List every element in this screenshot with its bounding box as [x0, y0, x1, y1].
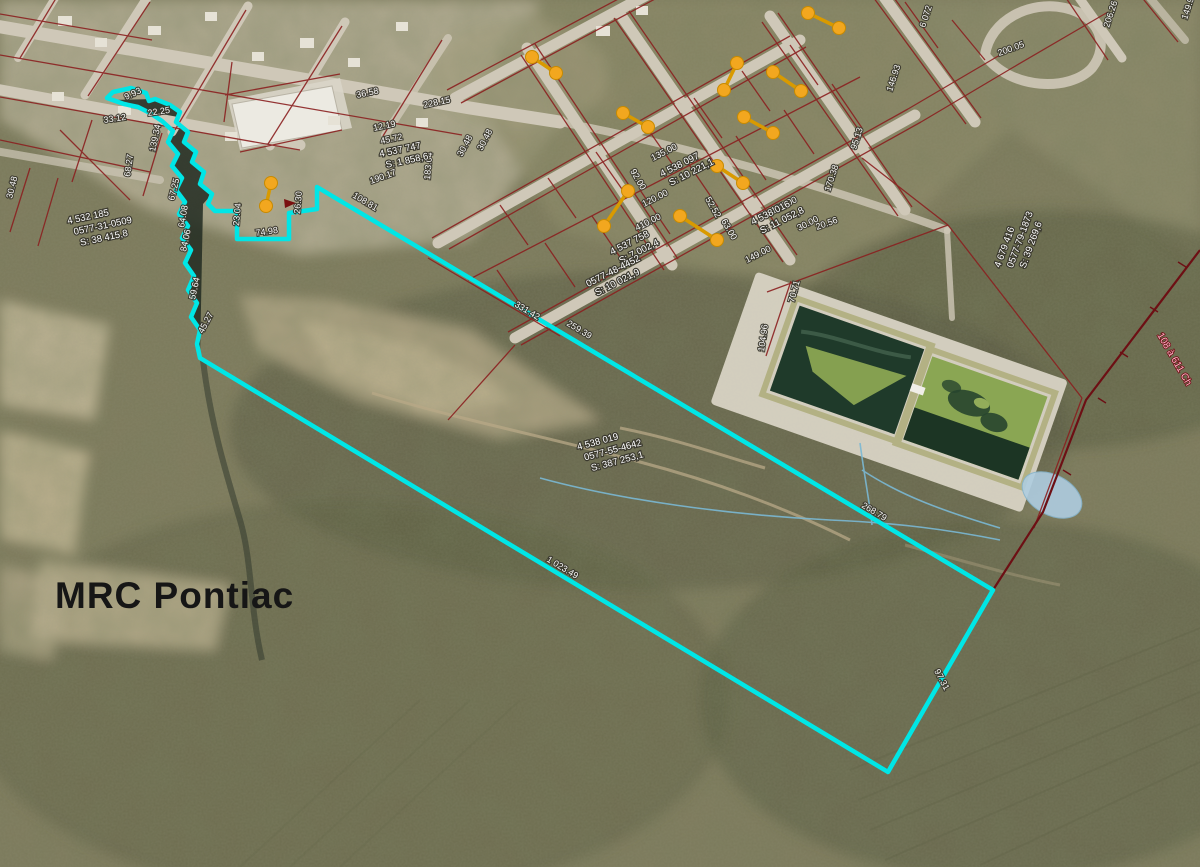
map-canvas[interactable]: 22.25 33.12 9.93 139.34 68.27 67.25 84.0… [0, 0, 1200, 867]
region-label: MRC Pontiac [55, 575, 294, 616]
dimension-label: 26.30 [292, 191, 304, 214]
map-viewport[interactable]: 22.25 33.12 9.93 139.34 68.27 67.25 84.0… [0, 0, 1200, 867]
dimension-label: 23.04 [231, 203, 243, 226]
